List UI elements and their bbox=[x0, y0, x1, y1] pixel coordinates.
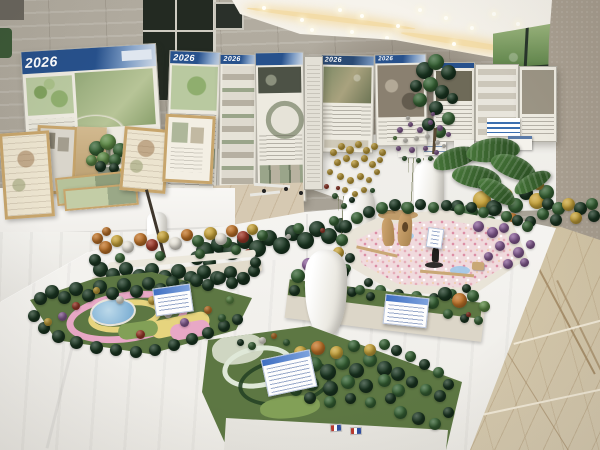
model-tree bbox=[419, 359, 430, 370]
model-tree bbox=[271, 333, 277, 339]
entry-tag bbox=[350, 427, 362, 435]
model-tree bbox=[412, 412, 425, 425]
model-tree bbox=[341, 375, 355, 389]
model-tree bbox=[248, 342, 256, 350]
model-tree bbox=[359, 379, 373, 393]
entry-tag bbox=[330, 424, 343, 433]
model-tree bbox=[406, 376, 418, 388]
model-tree bbox=[259, 337, 266, 344]
model-tree bbox=[394, 406, 407, 419]
model-tree bbox=[348, 340, 360, 352]
model-tree bbox=[330, 346, 343, 359]
card-rows bbox=[267, 360, 313, 393]
model-tree bbox=[323, 381, 338, 396]
model-tree bbox=[237, 339, 244, 346]
model-tree bbox=[391, 345, 402, 356]
model-tree bbox=[283, 339, 290, 346]
model-tree bbox=[378, 374, 391, 387]
model-tree bbox=[345, 393, 356, 404]
model-tree bbox=[429, 418, 441, 430]
model-tree bbox=[443, 379, 454, 390]
model-tree bbox=[365, 397, 376, 408]
model-tree bbox=[364, 344, 376, 356]
model-tree bbox=[443, 407, 454, 418]
exhibition-hall-photo: 2026 2026 2026 2026 bbox=[0, 0, 600, 450]
model-tree bbox=[324, 396, 336, 408]
model-tree bbox=[311, 341, 325, 355]
model-tree bbox=[405, 351, 416, 362]
model-tree bbox=[434, 390, 446, 402]
model-tree bbox=[379, 339, 390, 350]
model-tree bbox=[433, 367, 444, 378]
model-tree bbox=[320, 364, 336, 380]
model-tree bbox=[385, 393, 396, 404]
model-tree bbox=[420, 384, 432, 396]
model-tree bbox=[391, 367, 405, 381]
model-tree bbox=[304, 392, 316, 404]
